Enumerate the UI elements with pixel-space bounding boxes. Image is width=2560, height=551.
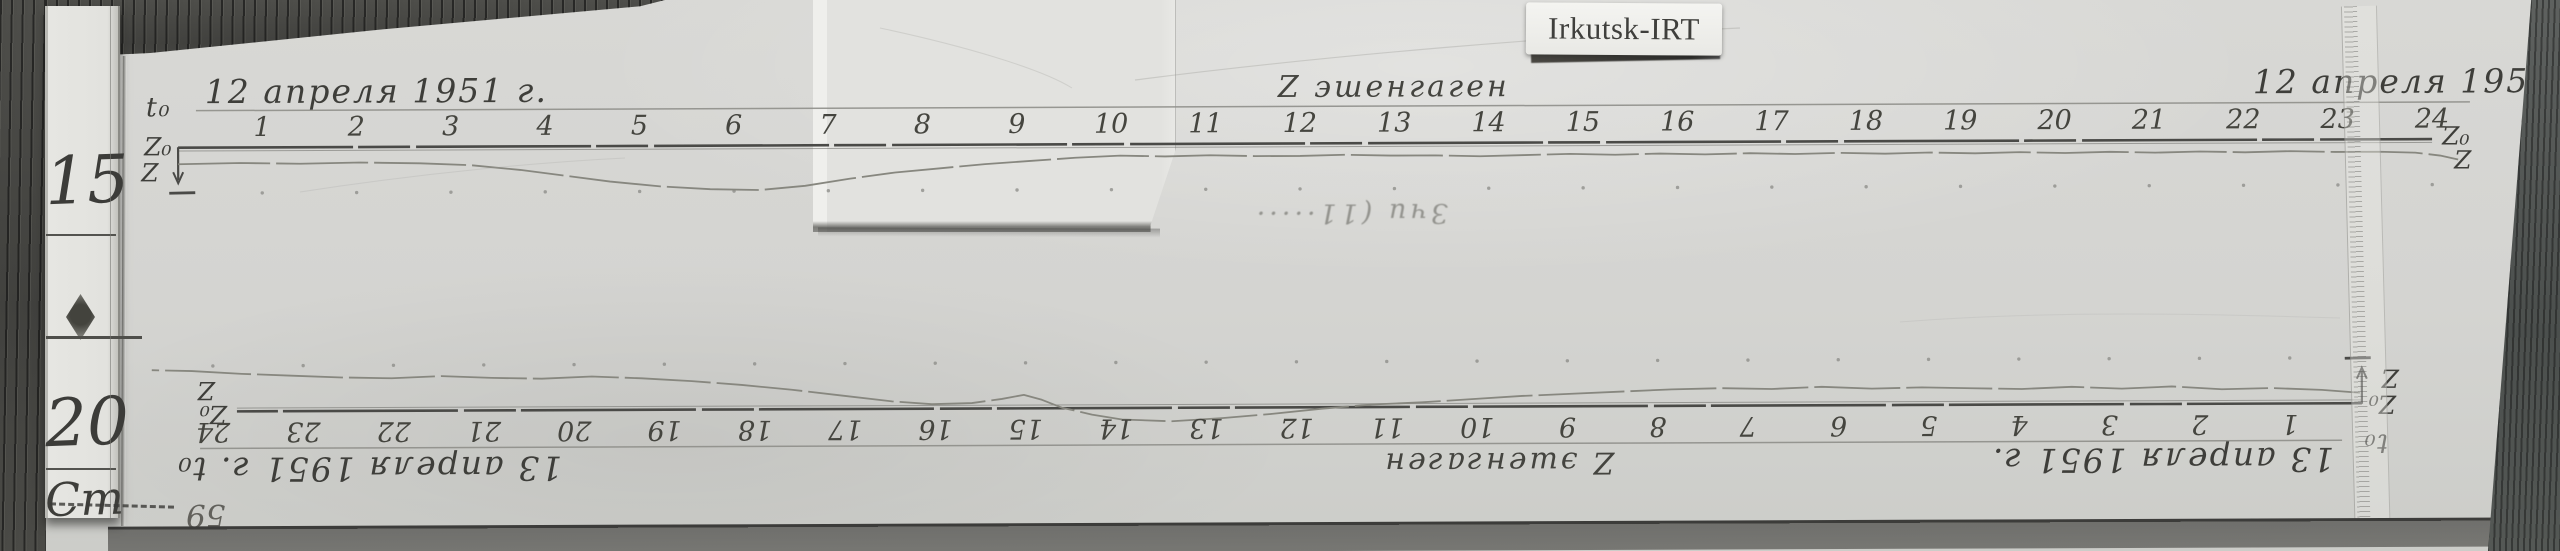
station-label: Irkutsk-IRT — [1526, 2, 1722, 55]
hour-label: 24 — [2414, 104, 2450, 135]
instrument-label: Z эшенгаген — [1382, 445, 1614, 481]
hour-label: 10 — [1459, 411, 1495, 442]
z-right-label: Z — [197, 376, 214, 405]
hour-label: 19 — [1942, 105, 1978, 136]
hour-label: 3 — [433, 111, 469, 142]
hour-label: 11 — [1187, 108, 1223, 139]
hour-label: 21 — [2131, 105, 2167, 136]
hour-label: 14 — [1470, 107, 1506, 138]
hour-label: 18 — [737, 414, 773, 445]
hour-label: 20 — [556, 415, 592, 446]
z0-left-label: Z₀ — [144, 132, 172, 161]
hour-label: 10 — [1093, 109, 1129, 140]
magnetogram-record-top: t₀ 12 апреля 1951 г. Z эшенгаген 12 апре… — [0, 43, 2560, 208]
hour-label: 7 — [1730, 410, 1766, 441]
hour-label: 6 — [1820, 410, 1856, 441]
date-right-label: 13 апреля 1951 г. t₀ — [176, 449, 562, 489]
ruler-divider — [46, 234, 116, 236]
hour-label: 17 — [1754, 106, 1790, 137]
hour-label: 24 — [195, 416, 231, 447]
hour-label: 15 — [1565, 107, 1601, 138]
hour-label: 13 — [1376, 107, 1412, 138]
date-right-label: 12 апреля 1951 г. t₀ — [2253, 61, 2560, 101]
hour-label: 14 — [1098, 412, 1134, 443]
ruler-unit-cm: Cm — [44, 471, 119, 528]
hour-label: 5 — [1911, 409, 1947, 440]
ruler-card: 15 20 Cm — [45, 6, 120, 518]
hour-label: 2 — [2182, 408, 2218, 439]
ruler-mark-20: 20 — [44, 389, 119, 458]
date-left-label: 12 апреля 1951 г. — [205, 71, 548, 111]
hour-label: 7 — [810, 110, 846, 141]
hour-label: 20 — [2037, 105, 2073, 136]
hour-label: 2 — [338, 111, 374, 142]
hour-label: 17 — [827, 413, 863, 444]
hour-label: 15 — [1008, 413, 1044, 444]
ruler-divider — [46, 336, 142, 339]
hour-label: 9 — [999, 109, 1035, 140]
trace-plot — [0, 43, 2560, 208]
hour-label: 8 — [904, 109, 940, 140]
ruler-mark-15: 15 — [44, 147, 119, 216]
hour-label: 12 — [1282, 108, 1318, 139]
faint-pencil-note: Зчи (11····· — [1148, 197, 1448, 228]
ruler-divider — [46, 468, 116, 470]
magnetogram-record-bottom: t₀ 13 апреля 1951 г. Z эшенгаген 13 апре… — [0, 343, 2492, 508]
hour-label: 19 — [647, 414, 683, 445]
hour-label: 13 — [1188, 412, 1224, 443]
hour-label: 21 — [466, 415, 502, 446]
hour-label: 16 — [917, 413, 953, 444]
hour-label: 23 — [285, 416, 321, 447]
scanned-magnetogram-photo: t₀ 12 апреля 1951 г. Z эшенгаген 12 апре… — [0, 0, 2560, 551]
wood-background-strip — [0, 0, 46, 551]
z-right-label: Z — [2454, 145, 2471, 174]
date-left-label: 13 апреля 1951 г. — [1991, 440, 2334, 480]
t0-label: t₀ — [146, 92, 172, 123]
hour-label: 8 — [1640, 410, 1676, 441]
z-left-label: Z — [141, 158, 158, 187]
hour-label: 3 — [2091, 409, 2127, 440]
patch-shadow — [818, 227, 1160, 237]
hour-label: 22 — [2225, 104, 2261, 135]
hour-label: 5 — [621, 110, 657, 141]
hour-label: 9 — [1550, 411, 1586, 442]
hour-label: 22 — [376, 415, 412, 446]
hour-label: 1 — [2272, 408, 2308, 439]
instrument-label: Z эшенгаген — [1278, 69, 1510, 105]
hour-label: 6 — [716, 110, 752, 141]
hour-label: 16 — [1659, 106, 1695, 137]
hour-label: 4 — [2001, 409, 2037, 440]
hour-label: 18 — [1848, 106, 1884, 137]
hour-label: 11 — [1369, 411, 1405, 442]
hour-label: 4 — [527, 111, 563, 142]
hour-label: 1 — [244, 112, 280, 143]
diamond-icon — [66, 294, 95, 340]
hour-label: 12 — [1279, 412, 1315, 443]
